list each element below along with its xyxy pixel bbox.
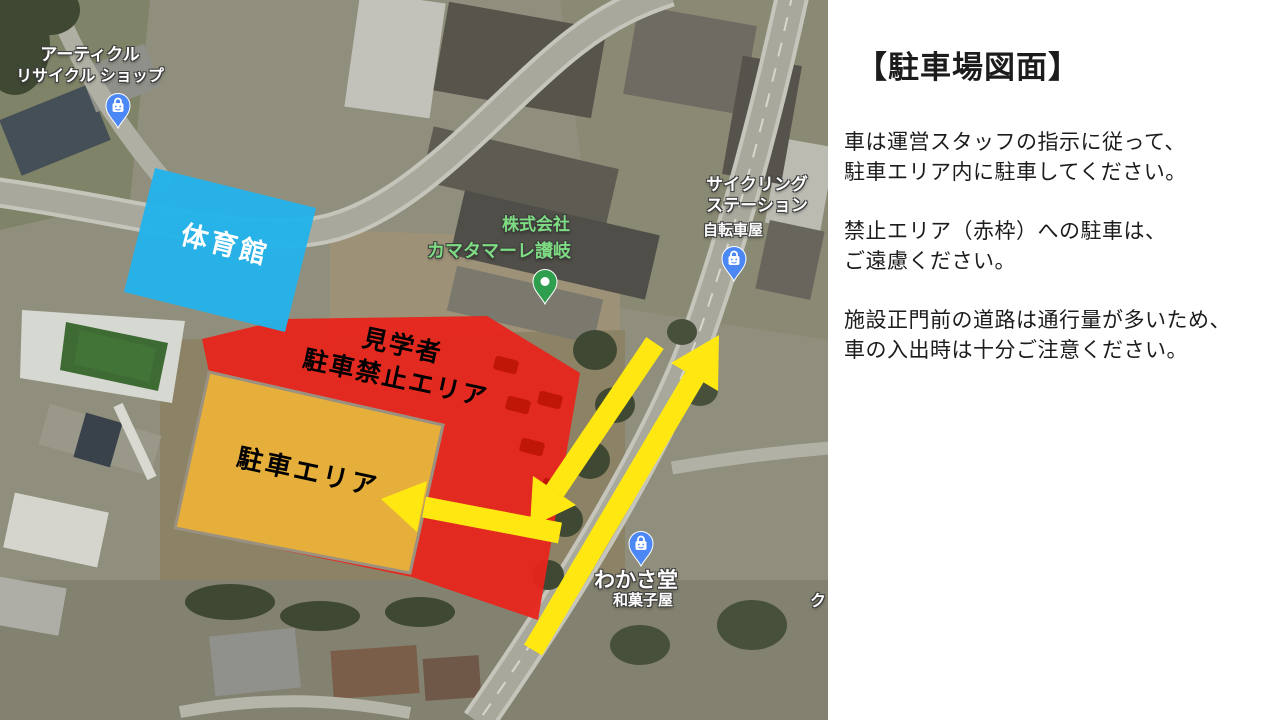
instructions-panel: 【駐車場図面】 車は運営スタッフの指示に従って、 駐車エリア内に駐車してください…	[828, 0, 1280, 720]
instruction-3-line2: 車の入出時は十分ご注意ください。	[844, 338, 1188, 362]
poi-label-cycling-station: サイクリング ステーション	[672, 174, 828, 217]
green-pin-icon	[532, 269, 558, 305]
poi-label-kamatamare-line1: 株式会社	[456, 214, 616, 235]
parking-map-slide: 体育館 見学者 駐車禁止エリア 駐車エリア アーティクル リサイクル ショップ …	[0, 0, 1280, 720]
instruction-2-line2: ご遠慮ください。	[844, 249, 1016, 273]
poi-label-kamatamare-line2: カマタマーレ讃岐	[409, 240, 589, 263]
poi-label-edge-partial: ク	[810, 592, 826, 612]
recycle-shop-sub: リサイクル ショップ	[16, 68, 164, 85]
shop-pin-icon	[105, 93, 131, 129]
instruction-3-line1: 施設正門前の道路は通行量が多いため、	[844, 308, 1231, 332]
panel-title: 【駐車場図面】	[856, 42, 1274, 87]
instruction-paragraph-1: 車は運営スタッフの指示に従って、 駐車エリア内に駐車してください。	[844, 127, 1274, 187]
instruction-paragraph-2: 禁止エリア（赤枠）への駐車は、 ご遠慮ください。	[844, 216, 1274, 276]
instruction-1-line1: 車は運営スタッフの指示に従って、	[844, 130, 1186, 154]
instruction-2-line1: 禁止エリア（赤枠）への駐車は、	[844, 219, 1167, 243]
poi-label-cycling-sub: 自転車屋	[683, 222, 783, 241]
poi-label-wakasado-sub: 和菓子屋	[583, 592, 703, 611]
instruction-paragraph-3: 施設正門前の道路は通行量が多いため、 車の入出時は十分ご注意ください。	[844, 305, 1274, 365]
instruction-1-line2: 駐車エリア内に駐車してください。	[844, 160, 1187, 184]
recycle-shop-name: アーティクル	[40, 45, 139, 64]
poi-label-wakasado: わかさ堂	[556, 568, 716, 594]
cycling-station-line1: サイクリング	[706, 175, 808, 194]
cycling-station-line2: ステーション	[706, 196, 808, 215]
poi-label-recycle-shop: アーティクル リサイクル ショップ	[5, 44, 175, 87]
shop-pin-icon	[721, 246, 747, 282]
shop-pin-icon	[628, 531, 654, 567]
satellite-map: 体育館 見学者 駐車禁止エリア 駐車エリア アーティクル リサイクル ショップ …	[0, 0, 828, 720]
